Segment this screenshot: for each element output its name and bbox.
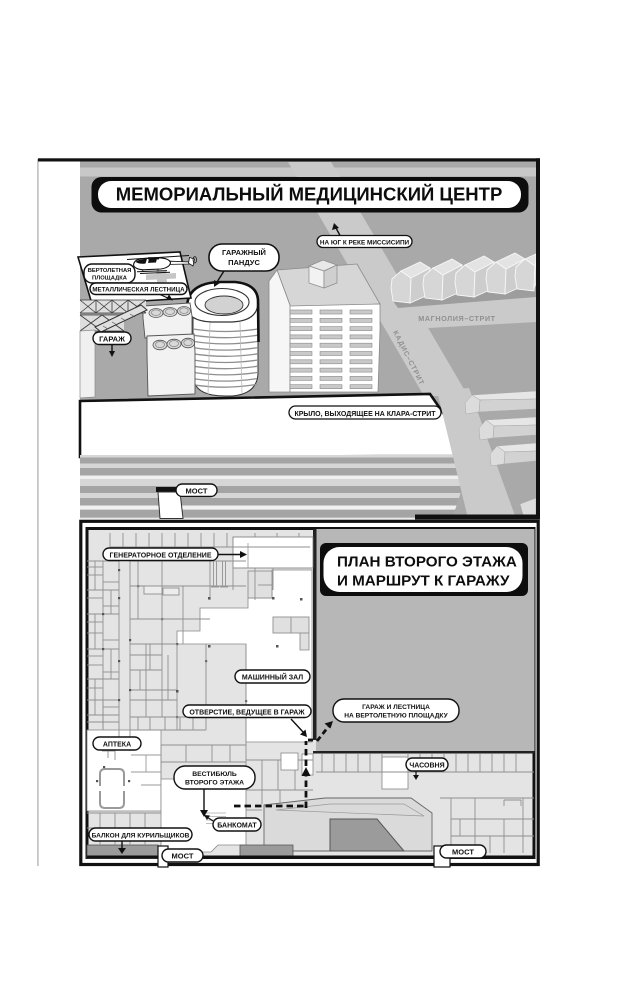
svg-text:МОСТ: МОСТ xyxy=(452,848,474,857)
svg-text:БАНКОМАТ: БАНКОМАТ xyxy=(217,823,257,830)
svg-text:ЧАСОВНЯ: ЧАСОВНЯ xyxy=(409,763,444,770)
svg-text:ОТВЕРСТИЕ, ВЕДУЩЕЕ В ГАРАЖ: ОТВЕРСТИЕ, ВЕДУЩЕЕ В ГАРАЖ xyxy=(189,710,305,717)
svg-text:НА ЮГ К РЕКЕ МИССИСИПИ: НА ЮГ К РЕКЕ МИССИСИПИ xyxy=(320,240,410,247)
svg-text:МАГНОЛИЯ–СТРИТ: МАГНОЛИЯ–СТРИТ xyxy=(418,314,495,323)
svg-text:ВЕРТОЛЕТНАЯ: ВЕРТОЛЕТНАЯ xyxy=(88,268,132,274)
svg-text:ПЛАН ВТОРОГО ЭТАЖА: ПЛАН ВТОРОГО ЭТАЖА xyxy=(337,554,517,571)
svg-text:МОСТ: МОСТ xyxy=(186,487,208,496)
svg-text:АПТЕКА: АПТЕКА xyxy=(103,742,131,749)
svg-text:МЕМОРИАЛЬНЫЙ МЕДИЦИНСКИЙ ЦЕНТР: МЕМОРИАЛЬНЫЙ МЕДИЦИНСКИЙ ЦЕНТР xyxy=(116,184,503,205)
svg-text:МОСТ: МОСТ xyxy=(172,852,194,861)
svg-text:ПАНДУС: ПАНДУС xyxy=(228,258,260,267)
svg-text:МАШИННЫЙ ЗАЛ: МАШИННЫЙ ЗАЛ xyxy=(242,673,303,682)
svg-text:КРЫЛО, ВЫХОДЯЩЕЕ НА КЛАРА-СТРИ: КРЫЛО, ВЫХОДЯЩЕЕ НА КЛАРА-СТРИТ xyxy=(294,411,436,418)
svg-text:НА ВЕРТОЛЕТНУЮ ПЛОЩАДКУ: НА ВЕРТОЛЕТНУЮ ПЛОЩАДКУ xyxy=(344,713,448,720)
svg-text:МЕТАЛЛИЧЕСКАЯ ЛЕСТНИЦА: МЕТАЛЛИЧЕСКАЯ ЛЕСТНИЦА xyxy=(92,287,185,294)
svg-text:ГЕНЕРАТОРНОЕ ОТДЕЛЕНИЕ: ГЕНЕРАТОРНОЕ ОТДЕЛЕНИЕ xyxy=(110,553,212,560)
svg-text:И МАРШРУТ К ГАРАЖУ: И МАРШРУТ К ГАРАЖУ xyxy=(337,573,510,590)
svg-text:ПЛОЩАДКА: ПЛОЩАДКА xyxy=(92,276,128,282)
svg-text:ВЕСТИБЮЛЬ: ВЕСТИБЮЛЬ xyxy=(192,771,237,778)
svg-text:ВТОРОГО ЭТАЖА: ВТОРОГО ЭТАЖА xyxy=(185,780,244,787)
svg-text:ГАРАЖНЫЙ: ГАРАЖНЫЙ xyxy=(222,248,266,257)
svg-text:ГАРАЖ: ГАРАЖ xyxy=(99,335,125,344)
svg-text:БАЛКОН ДЛЯ КУРИЛЬЩИКОВ: БАЛКОН ДЛЯ КУРИЛЬЩИКОВ xyxy=(92,833,190,840)
svg-text:ГАРАЖ И ЛЕСТНИЦА: ГАРАЖ И ЛЕСТНИЦА xyxy=(362,704,430,711)
